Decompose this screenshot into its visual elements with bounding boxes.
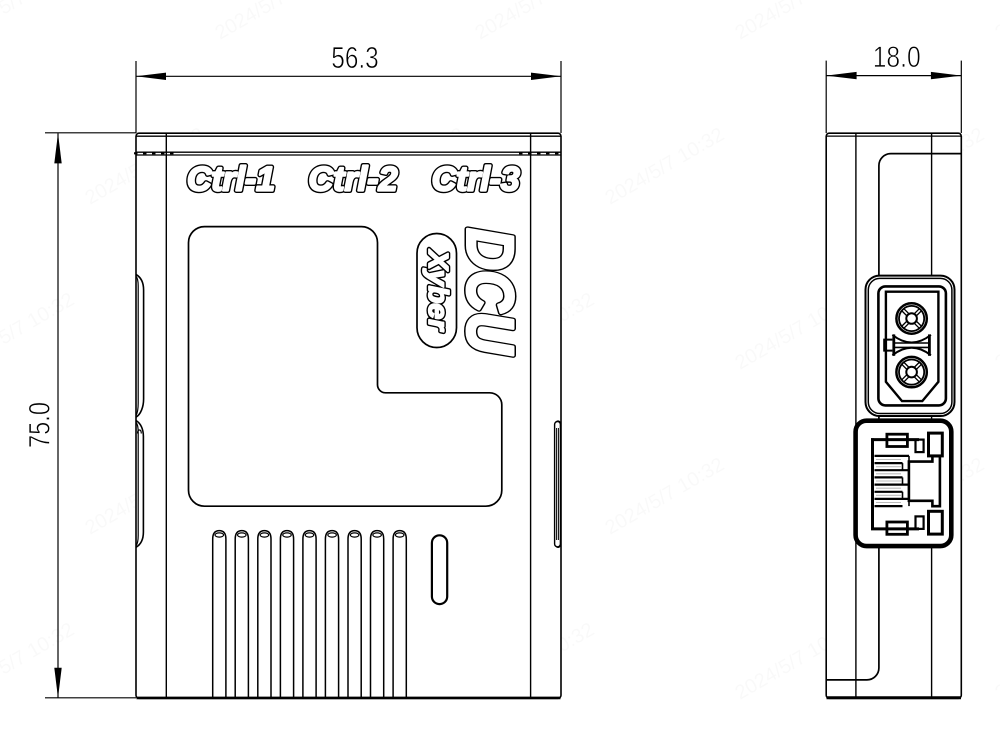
svg-text:Ctrl-3: Ctrl-3: [432, 161, 520, 199]
svg-text:Ctrl-1: Ctrl-1: [187, 161, 275, 199]
svg-text:Xyber: Xyber: [423, 248, 454, 332]
svg-text:75.0: 75.0: [24, 402, 57, 448]
svg-text:56.3: 56.3: [331, 40, 379, 75]
svg-text:18.0: 18.0: [873, 41, 921, 74]
svg-text:DCU: DCU: [454, 228, 528, 356]
svg-text:Ctrl-2: Ctrl-2: [309, 161, 398, 199]
